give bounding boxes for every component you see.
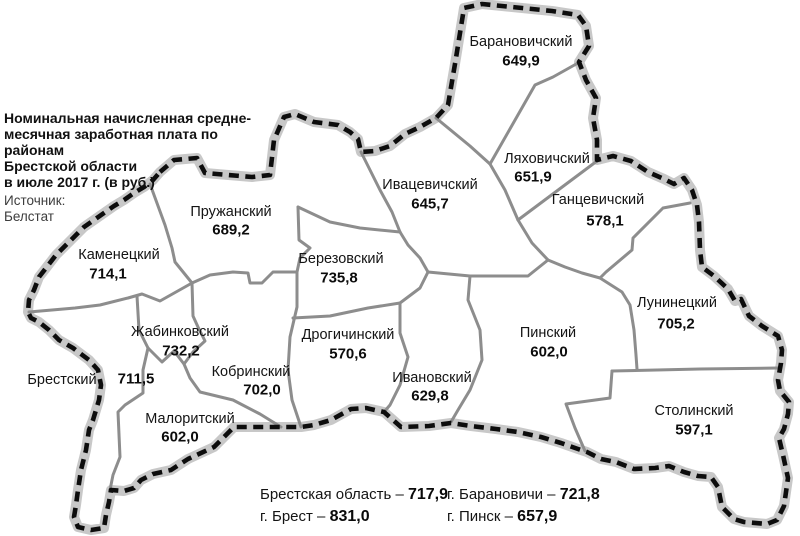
district-value: 732,2 — [162, 343, 200, 360]
district-value: 645,7 — [411, 196, 449, 213]
summary-value: 831,0 — [330, 508, 370, 525]
district-name: Лунинецкий — [637, 295, 717, 311]
district-name: Березовский — [298, 251, 383, 267]
district-value: 602,0 — [161, 429, 199, 446]
district-name: Дрогичинский — [302, 327, 395, 343]
summary-label: г. Барановичи – — [447, 486, 560, 503]
source-note-line: Белстат — [4, 209, 164, 225]
district-value: 689,2 — [212, 222, 250, 239]
district-value: 702,0 — [243, 382, 281, 399]
summary-label: г. Пинск – — [447, 508, 517, 525]
summary-value: 721,8 — [560, 486, 600, 503]
district-value: 629,8 — [411, 388, 449, 405]
map-title-line: Номинальная начисленная средне- — [4, 110, 256, 126]
district-name: Барановичский — [470, 34, 573, 50]
infographic-map-brest-region: Номинальная начисленная средне- месячная… — [0, 0, 800, 536]
map-title-line: Брестской области — [4, 158, 256, 174]
summary-item: Брестская область – 717,9 — [260, 486, 448, 504]
district-name: Столинский — [654, 403, 733, 419]
map-title-line: в июле 2017 г. (в руб.) — [4, 174, 256, 190]
district-value: 578,1 — [586, 213, 624, 230]
district-name: Пинский — [520, 325, 576, 341]
district-name: Малоритский — [145, 411, 234, 427]
district-value: 602,0 — [530, 344, 568, 361]
summary-label: Брестская область – — [260, 486, 408, 503]
district-name: Ивановский — [392, 370, 471, 386]
summary-value: 657,9 — [517, 508, 557, 525]
district-name: Жабинковский — [131, 324, 229, 340]
district-name: Ганцевичский — [552, 192, 644, 208]
district-name: Ивацевичский — [382, 177, 477, 193]
district-value: 651,9 — [514, 169, 552, 186]
summary-item: г. Пинск – 657,9 — [447, 508, 557, 526]
district-name: Ляховичский — [504, 151, 590, 167]
summary-item: г. Брест – 831,0 — [260, 508, 370, 526]
district-name: Каменецкий — [78, 247, 159, 263]
district-value: 649,9 — [502, 53, 540, 70]
district-value: 714,1 — [89, 266, 127, 283]
district-name: Пружанский — [190, 204, 271, 220]
district-name: Брестский — [27, 372, 96, 388]
summary-label: г. Брест – — [260, 508, 330, 525]
map-title: Номинальная начисленная средне- месячная… — [4, 110, 256, 190]
district-value: 705,2 — [657, 316, 695, 333]
district-value: 735,8 — [320, 270, 358, 287]
source-note: Источник: Белстат — [4, 193, 164, 225]
district-value: 711,5 — [118, 371, 155, 388]
district-value: 597,1 — [675, 422, 713, 439]
map-title-line: месячная заработная плата по районам — [4, 126, 256, 158]
summary-value: 717,9 — [408, 486, 448, 503]
region-outline-casing — [28, 4, 789, 530]
district-name: Кобринский — [212, 364, 291, 380]
summary-item: г. Барановичи – 721,8 — [447, 486, 600, 504]
source-note-line: Источник: — [4, 193, 164, 209]
district-value: 570,6 — [329, 346, 367, 363]
